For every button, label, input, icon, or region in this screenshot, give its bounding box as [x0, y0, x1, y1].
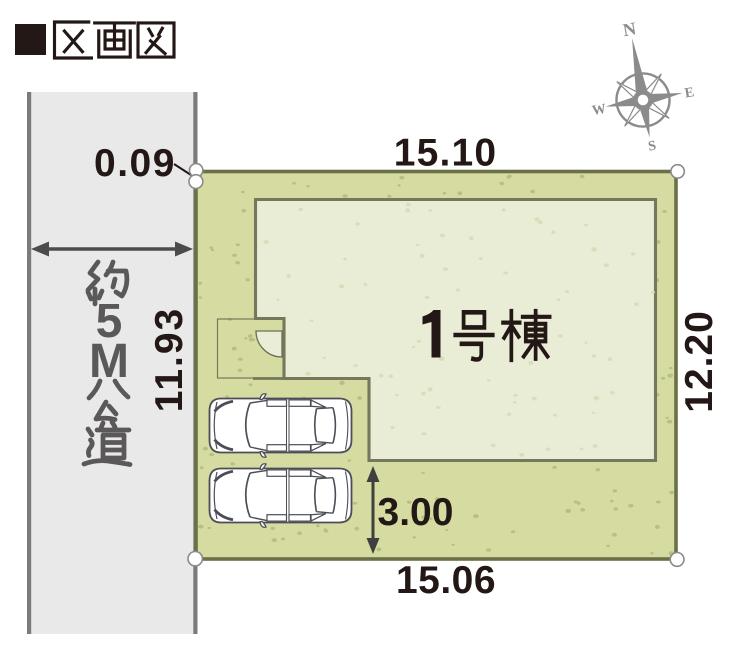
svg-text:0.09: 0.09 [94, 142, 176, 185]
svg-text:11.93: 11.93 [148, 307, 191, 412]
svg-text:W: W [591, 102, 607, 119]
svg-text:3.00: 3.00 [378, 491, 454, 534]
svg-text:15.10: 15.10 [394, 132, 498, 175]
svg-text:15.06: 15.06 [396, 559, 496, 602]
svg-text:12.20: 12.20 [678, 310, 721, 413]
svg-text:M: M [89, 335, 129, 388]
